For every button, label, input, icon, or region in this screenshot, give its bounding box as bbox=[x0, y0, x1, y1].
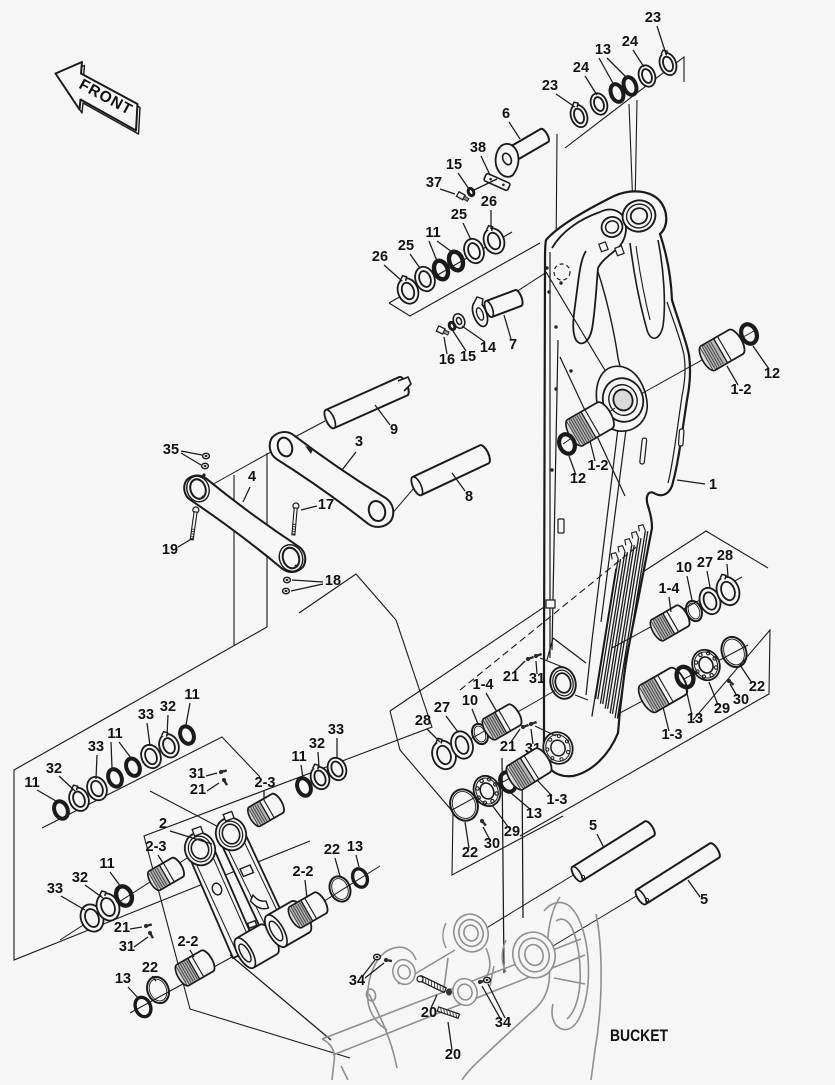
svg-text:23: 23 bbox=[645, 10, 661, 26]
svg-text:3: 3 bbox=[355, 434, 363, 450]
svg-text:15: 15 bbox=[460, 349, 476, 365]
svg-text:21: 21 bbox=[503, 669, 519, 685]
svg-text:11: 11 bbox=[291, 749, 306, 765]
svg-text:11: 11 bbox=[99, 856, 114, 872]
svg-text:33: 33 bbox=[138, 707, 154, 723]
svg-text:8: 8 bbox=[465, 489, 473, 505]
svg-text:37: 37 bbox=[426, 175, 442, 191]
svg-text:2-2: 2-2 bbox=[178, 934, 199, 950]
svg-text:23: 23 bbox=[542, 78, 558, 94]
svg-text:1-2: 1-2 bbox=[588, 458, 609, 474]
svg-text:2-2: 2-2 bbox=[293, 864, 314, 880]
svg-text:16: 16 bbox=[439, 352, 455, 368]
svg-text:2: 2 bbox=[159, 816, 167, 832]
svg-text:13: 13 bbox=[347, 839, 363, 855]
svg-text:18: 18 bbox=[325, 573, 341, 589]
svg-text:22: 22 bbox=[142, 960, 158, 976]
svg-text:2-3: 2-3 bbox=[146, 839, 167, 855]
svg-text:20: 20 bbox=[421, 1005, 437, 1021]
svg-text:33: 33 bbox=[47, 881, 63, 897]
svg-text:28: 28 bbox=[717, 548, 733, 564]
svg-text:33: 33 bbox=[328, 722, 344, 738]
svg-text:21: 21 bbox=[190, 782, 206, 798]
svg-text:38: 38 bbox=[470, 140, 486, 156]
svg-text:11: 11 bbox=[107, 726, 122, 742]
svg-text:32: 32 bbox=[46, 761, 62, 777]
svg-text:10: 10 bbox=[676, 560, 692, 576]
svg-text:2-3: 2-3 bbox=[255, 775, 276, 791]
svg-text:13: 13 bbox=[115, 971, 131, 987]
svg-text:25: 25 bbox=[398, 238, 414, 254]
svg-text:24: 24 bbox=[573, 60, 589, 76]
svg-text:1-4: 1-4 bbox=[659, 581, 680, 597]
svg-text:12: 12 bbox=[570, 471, 586, 487]
svg-text:27: 27 bbox=[434, 700, 450, 716]
svg-text:14: 14 bbox=[480, 340, 496, 356]
svg-text:1-3: 1-3 bbox=[662, 727, 683, 743]
svg-text:20: 20 bbox=[445, 1047, 461, 1063]
svg-text:12: 12 bbox=[764, 366, 780, 382]
svg-text:33: 33 bbox=[88, 739, 104, 755]
svg-text:30: 30 bbox=[484, 836, 500, 852]
svg-text:32: 32 bbox=[309, 736, 325, 752]
svg-text:5: 5 bbox=[700, 892, 708, 908]
svg-text:31: 31 bbox=[119, 939, 135, 955]
svg-text:1: 1 bbox=[709, 477, 717, 493]
svg-text:29: 29 bbox=[504, 824, 520, 840]
svg-text:11: 11 bbox=[24, 775, 39, 791]
svg-text:1-4: 1-4 bbox=[473, 677, 494, 693]
svg-text:32: 32 bbox=[72, 870, 88, 886]
svg-text:5: 5 bbox=[589, 818, 597, 834]
svg-text:9: 9 bbox=[390, 422, 398, 438]
svg-text:13: 13 bbox=[595, 42, 611, 58]
svg-text:11: 11 bbox=[184, 687, 199, 703]
svg-text:7: 7 bbox=[509, 337, 517, 353]
svg-text:1-2: 1-2 bbox=[731, 382, 752, 398]
svg-text:31: 31 bbox=[189, 766, 205, 782]
svg-text:BUCKET: BUCKET bbox=[610, 1026, 668, 1045]
svg-text:26: 26 bbox=[372, 249, 388, 265]
svg-text:11: 11 bbox=[425, 225, 440, 241]
svg-text:34: 34 bbox=[495, 1015, 511, 1031]
svg-text:15: 15 bbox=[446, 157, 462, 173]
svg-text:4: 4 bbox=[248, 469, 256, 485]
svg-text:19: 19 bbox=[162, 542, 178, 558]
svg-text:22: 22 bbox=[462, 845, 478, 861]
svg-text:26: 26 bbox=[481, 194, 497, 210]
svg-text:25: 25 bbox=[451, 207, 467, 223]
svg-text:29: 29 bbox=[714, 701, 730, 717]
svg-text:21: 21 bbox=[114, 920, 130, 936]
svg-text:27: 27 bbox=[697, 555, 713, 571]
svg-text:13: 13 bbox=[687, 711, 703, 727]
svg-text:10: 10 bbox=[462, 693, 478, 709]
svg-text:6: 6 bbox=[502, 106, 510, 122]
svg-text:22: 22 bbox=[324, 842, 340, 858]
svg-text:35: 35 bbox=[163, 442, 179, 458]
svg-text:17: 17 bbox=[318, 497, 334, 513]
svg-text:32: 32 bbox=[160, 699, 176, 715]
svg-text:21: 21 bbox=[500, 739, 516, 755]
svg-text:28: 28 bbox=[415, 713, 431, 729]
svg-text:24: 24 bbox=[622, 34, 638, 50]
